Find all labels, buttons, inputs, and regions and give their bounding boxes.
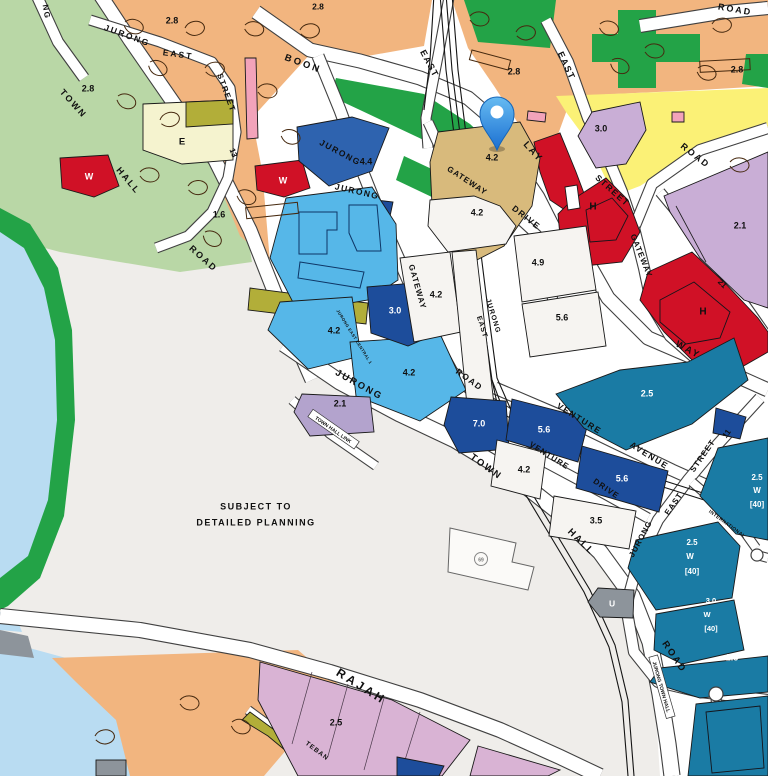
plot-ratio-3-0-w40-1: 3.0 (706, 596, 716, 605)
plot-ratio-2-8-e: 2.8 (731, 64, 744, 74)
plot-label-u-text: U (609, 598, 615, 608)
plot-ratio-3-0-navy-text: 3.0 (389, 305, 402, 315)
master-plan-map[interactable]: NGJURONGEASTSTREET13TOWNHALLROADBOONLAYW… (0, 0, 768, 776)
plot-ratio-4-2-blue-a-text: 4.2 (328, 325, 341, 335)
plot-ratio-5-6-white-text: 5.6 (556, 312, 569, 322)
plot-ratio-2-5-teal: 2.5 (641, 388, 654, 398)
roundabout-small (709, 687, 723, 701)
plot-ratio-5-6-navy-b-text: 5.6 (616, 473, 629, 483)
plot-ratio-4-2-white-c-text: 4.2 (518, 464, 531, 474)
plot-ratio-2-5-w40-right-1-text: 2.5 (751, 473, 763, 482)
plot-ratio-2-8-c-text: 2.8 (82, 83, 95, 93)
plot-ratio-5-6-white: 5.6 (556, 312, 569, 322)
plot-label-e: E (179, 137, 185, 148)
plot-ratio-5-6-navy-b: 5.6 (616, 473, 629, 483)
plot-label-h-a-text: H (589, 202, 596, 213)
plot-label-e-text: E (179, 137, 185, 148)
plot-ratio-2-1-lilac-text: 2.1 (334, 398, 347, 408)
plot-ratio-4-2-blue-b-text: 4.2 (403, 367, 416, 377)
map-canvas: NGJURONGEASTSTREET13TOWNHALLROADBOONLAYW… (0, 0, 768, 776)
plot-ratio-2-1-lilac: 2.1 (334, 398, 347, 408)
subject-note-line1-text: SUBJECT TO (220, 501, 292, 511)
plot-ratio-4-2-blue-b: 4.2 (403, 367, 416, 377)
building-number-69-text: 69 (478, 557, 484, 563)
plot-ratio-2-5-teal-low-text: 2.5 (726, 652, 739, 662)
plot-ratio-2-8-d-text: 2.8 (508, 66, 521, 76)
plot-ratio-4-2-pin-text: 4.2 (486, 152, 499, 162)
plot-label-w-a-text: W (85, 171, 94, 181)
roundabout-right (751, 549, 763, 561)
plot-ratio-7-0-text: 7.0 (473, 418, 486, 428)
plot-ratio-2-8-a-text: 2.8 (312, 1, 324, 11)
plot-ratio-1-6: 1.6 (213, 209, 226, 219)
plot-ratio-2-5-w40-mid-2-text: W (686, 552, 694, 561)
plot-label-u: U (609, 598, 615, 608)
plot-ratio-2-5-w40-right-2-text: W (753, 486, 761, 495)
building-pink-strip-c (672, 112, 684, 122)
plot-ratio-4-9-text: 4.9 (532, 257, 545, 267)
plot-label-h-b-text: H (699, 307, 706, 318)
building-pink-strip-b (527, 111, 546, 122)
plot-ratio-2-5-w40-mid-3: [40] (685, 567, 700, 576)
plot-label-h-b: H (699, 307, 706, 318)
plot-ratio-2-5-w40-right-2: W (753, 486, 761, 495)
plot-ratio-4-2-white-b: 4.2 (430, 289, 443, 299)
plot-ratio-2-5-teal-low: 2.5 (726, 652, 739, 662)
plot-ratio-2-5-w40-mid-2: W (686, 552, 694, 561)
plot-ratio-2-5-w40-mid-1-text: 2.5 (686, 538, 698, 547)
pin-hole (491, 106, 504, 119)
plot-ratio-2-1-purple: 2.1 (734, 220, 747, 230)
plot-ratio-4-2-pin: 4.2 (486, 152, 499, 162)
plot-ratio-3-0-purple-text: 3.0 (595, 123, 608, 133)
plot-ratio-2-5-mauve-text: 2.5 (330, 717, 343, 727)
plot-label-w-a: W (85, 171, 94, 181)
plot-ratio-3-5-text: 3.5 (590, 515, 603, 525)
plot-white-4-9[interactable] (514, 226, 596, 302)
plot-ratio-7-0: 7.0 (473, 418, 486, 428)
plot-ratio-4-2-white-c: 4.2 (518, 464, 531, 474)
plot-ratio-2-8-a: 2.8 (312, 1, 324, 11)
plot-ratio-2-5-w40-mid-1: 2.5 (686, 538, 698, 547)
plot-ratio-3-0-w40-3: [40] (704, 624, 718, 633)
plot-ratio-3-5: 3.5 (590, 515, 603, 525)
building-white-in-red (565, 185, 580, 210)
plot-ratio-2-8-b: 2.8 (166, 15, 179, 25)
plot-ratio-4-2-blue-a: 4.2 (328, 325, 341, 335)
building-number-69: 69 (478, 557, 484, 563)
plot-ratio-2-8-d: 2.8 (508, 66, 521, 76)
plot-ratio-2-8-c: 2.8 (82, 83, 95, 93)
plot-ratio-2-5-w40-mid-3-text: [40] (685, 567, 700, 576)
plot-ratio-3-0-purple: 3.0 (595, 123, 608, 133)
plot-ratio-4-4: 4.4 (360, 156, 373, 166)
plot-ratio-5-6-navy-a: 5.6 (538, 424, 551, 434)
plot-label-w-b: W (279, 175, 288, 185)
plot-ratio-3-0-w40-3-text: [40] (704, 624, 718, 633)
plot-ratio-2-8-e-text: 2.8 (731, 64, 744, 74)
plot-ratio-2-5-mauve: 2.5 (330, 717, 343, 727)
plot-ratio-3-0-w40-2: W (703, 610, 711, 619)
plot-ratio-4-2-white-a-text: 4.2 (471, 207, 484, 217)
plot-ratio-3-0-navy: 3.0 (389, 305, 402, 315)
plot-teal-bottom-right[interactable] (688, 696, 768, 776)
plot-ratio-2-5-w40-right-3-text: [40] (750, 500, 765, 509)
plot-white-5-6[interactable] (522, 292, 606, 357)
plot-ratio-4-2-white-b-text: 4.2 (430, 289, 443, 299)
plot-ratio-4-4-text: 4.4 (360, 156, 373, 166)
plot-ratio-1-6-text: 1.6 (213, 209, 226, 219)
subject-note-line1: SUBJECT TO (220, 501, 292, 511)
plot-label-w-b-text: W (279, 175, 288, 185)
plot-ratio-3-0-w40-2-text: W (703, 610, 711, 619)
plot-ratio-2-1-purple-text: 2.1 (734, 220, 747, 230)
plot-ratio-3-0-w40-1-text: 3.0 (706, 596, 716, 605)
plot-ratio-2-5-teal-text: 2.5 (641, 388, 654, 398)
plot-ratio-4-9: 4.9 (532, 257, 545, 267)
plot-ratio-2-8-b-text: 2.8 (166, 15, 179, 25)
plot-gray-building-south[interactable] (96, 760, 126, 776)
plot-ratio-2-5-w40-right-1: 2.5 (751, 473, 763, 482)
building-pink-strip-a (245, 58, 258, 139)
plot-ratio-5-6-navy-a-text: 5.6 (538, 424, 551, 434)
plot-ratio-2-5-w40-right-3: [40] (750, 500, 765, 509)
subject-note-line2-text: DETAILED PLANNING (196, 517, 315, 527)
plot-ratio-4-2-white-a: 4.2 (471, 207, 484, 217)
plot-label-h-a: H (589, 202, 596, 213)
subject-note-line2: DETAILED PLANNING (196, 517, 315, 527)
